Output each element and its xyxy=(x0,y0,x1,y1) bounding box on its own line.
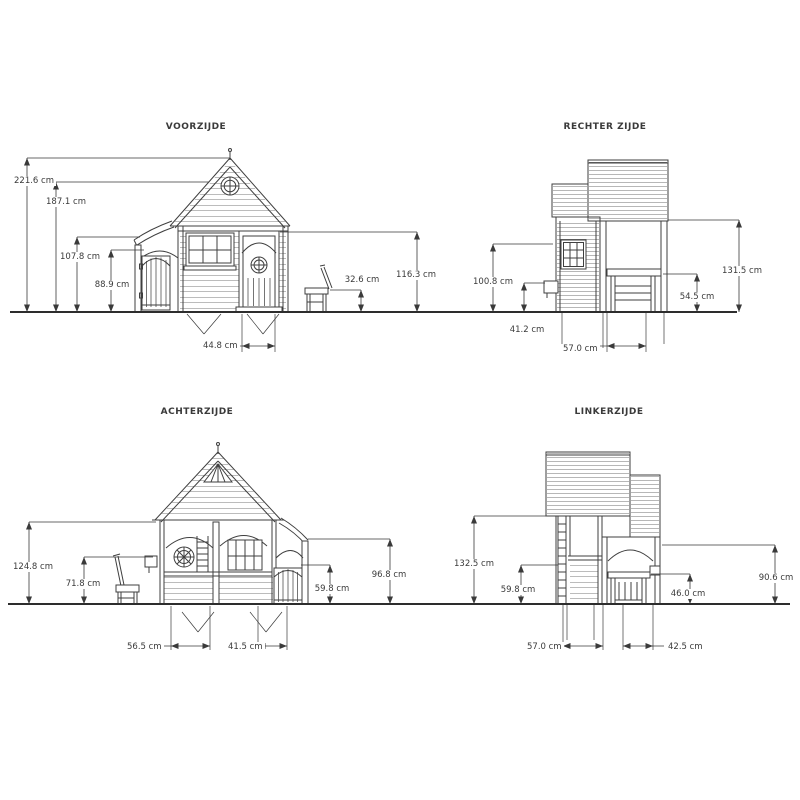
view-title-right: RECHTER ZIJDE xyxy=(564,122,647,132)
dim-front-bench-height: 32.6 cm xyxy=(343,275,382,285)
dim-back-fence-height: 59.8 cm xyxy=(313,584,352,594)
dim-back-chair-height: 71.8 cm xyxy=(64,579,103,589)
dim-back-eaves-height: 124.8 cm xyxy=(11,562,55,572)
dim-left-porch-width: 42.5 cm xyxy=(666,642,705,652)
dim-left-rail-height: 46.0 cm xyxy=(669,589,708,599)
front-view-drawing xyxy=(134,149,332,335)
dim-right-wall-height: 100.8 cm xyxy=(471,277,515,287)
dim-front-total-height: 221.6 cm xyxy=(12,176,56,186)
dim-left-main-width: 57.0 cm xyxy=(525,642,564,652)
dim-front-eaves-height: 187.1 cm xyxy=(44,197,88,207)
dim-right-roof-height: 131.5 cm xyxy=(720,266,764,276)
dim-left-roof-height: 132.5 cm xyxy=(452,559,496,569)
view-title-back: ACHTERZIJDE xyxy=(161,407,234,417)
dim-right-table-height: 54.5 cm xyxy=(678,292,717,302)
dim-back-porch-height: 96.8 cm xyxy=(370,570,409,580)
dim-front-porch-height: 107.8 cm xyxy=(58,252,102,262)
dim-front-gate-height: 88.9 cm xyxy=(93,280,132,290)
dim-front-door-height: 116.3 cm xyxy=(394,270,438,280)
view-title-left: LINKERZIJDE xyxy=(574,407,643,417)
playhouse-dimension-drawing: VOORZIJDE RECHTER ZIJDE ACHTERZIJDE LINK… xyxy=(0,0,800,800)
right-view-drawing xyxy=(544,160,668,348)
dim-back-door-width: 41.5 cm xyxy=(226,642,265,652)
dim-right-window-height: 41.2 cm xyxy=(508,325,547,335)
dim-back-left-width: 56.5 cm xyxy=(125,642,164,652)
view-title-front: VOORZIJDE xyxy=(166,122,226,132)
dim-left-porch-height: 90.6 cm xyxy=(757,573,796,583)
dim-front-door-width: 44.8 cm xyxy=(201,341,240,351)
dim-right-base-width: 57.0 cm xyxy=(561,344,600,354)
blueprint-linework xyxy=(0,0,800,800)
dim-left-wall-height: 59.8 cm xyxy=(499,585,538,595)
